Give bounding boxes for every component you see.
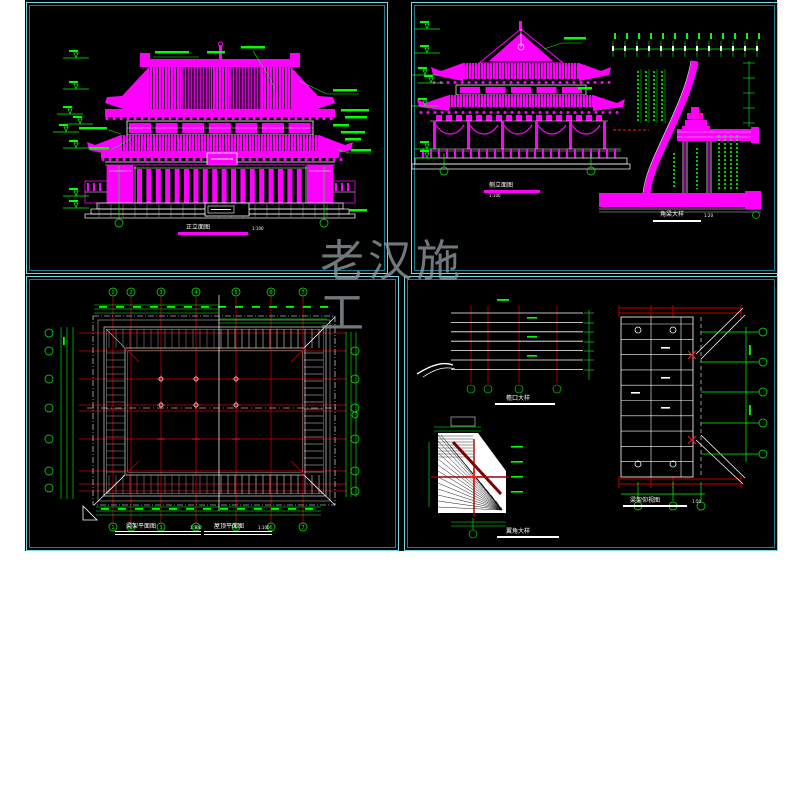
caption-framing-plan-detail-scale: 1:50: [692, 500, 701, 504]
caption-underline: [178, 232, 248, 235]
caption-underline: [497, 536, 559, 538]
caption-roof-plan-right: 屋顶平面图: [214, 524, 244, 530]
grid-bubbles: [45, 288, 359, 531]
svg-text:5: 5: [234, 290, 237, 296]
caption-underline: [204, 531, 272, 532]
caption-eave-detail: 檐口大样: [506, 396, 530, 402]
svg-text:7: 7: [301, 525, 304, 531]
caption-corner-fan-detail: 翼角大样: [506, 529, 530, 535]
svg-text:1: 1: [111, 290, 114, 296]
caption-side-elevation-scale: 1:100: [489, 194, 501, 198]
svg-text:3: 3: [159, 290, 162, 296]
caption-roof-plan-right-scale: 1:100: [258, 526, 270, 530]
svg-text:7: 7: [301, 290, 304, 296]
details-drawing: [405, 277, 777, 550]
caption-underline: [115, 531, 201, 532]
cad-sheet-screenshot: 1 2 3 4 5 6 7 1 2 3 4 5 6 7: [0, 0, 800, 800]
svg-text:4: 4: [194, 290, 197, 296]
caption-roof-plan-left-scale: 1:100: [190, 526, 202, 530]
caption-corner-beam-section: 角梁大样: [660, 212, 684, 218]
caption-front-elevation: 正立面图: [186, 225, 210, 231]
north-arrow: [83, 506, 97, 520]
side-elevation-drawing: [412, 3, 777, 273]
caption-underline: [495, 403, 555, 405]
svg-text:2: 2: [129, 290, 132, 296]
roof-plan-drawing: 1 2 3 4 5 6 7 1 2 3 4 5 6 7: [27, 277, 398, 550]
caption-underline: [115, 534, 201, 535]
drawing-canvas: 1 2 3 4 5 6 7 1 2 3 4 5 6 7: [25, 0, 777, 551]
panel-side-elevation: [411, 2, 778, 274]
caption-side-elevation: 侧立面图: [489, 183, 513, 189]
caption-framing-plan-detail: 梁架仰视图: [630, 498, 660, 504]
caption-underline: [653, 220, 701, 222]
caption-roof-plan-left: 梁架平面图: [126, 524, 156, 530]
panel-details: [404, 276, 778, 551]
caption-corner-beam-section-scale: 1:20: [704, 214, 713, 218]
caption-underline: [623, 505, 687, 507]
svg-text:6: 6: [269, 290, 272, 296]
caption-underline: [204, 534, 272, 535]
panel-roof-plan: 1 2 3 4 5 6 7 1 2 3 4 5 6 7: [26, 276, 399, 551]
caption-front-elevation-scale: 1:100: [252, 227, 264, 231]
